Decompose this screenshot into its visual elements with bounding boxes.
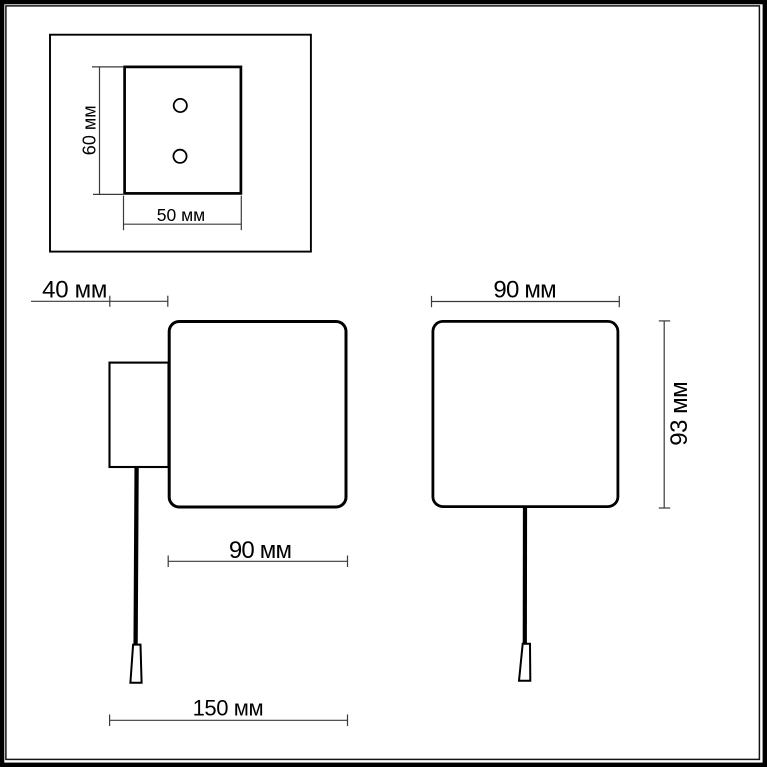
svg-text:90 мм: 90 мм xyxy=(229,537,291,564)
svg-text:60 мм: 60 мм xyxy=(80,105,100,155)
svg-text:93 мм: 93 мм xyxy=(666,382,693,446)
svg-text:40 мм: 40 мм xyxy=(42,276,107,303)
svg-text:90 мм: 90 мм xyxy=(493,277,555,304)
svg-text:50 мм: 50 мм xyxy=(157,205,205,225)
svg-text:150 мм: 150 мм xyxy=(193,696,264,721)
